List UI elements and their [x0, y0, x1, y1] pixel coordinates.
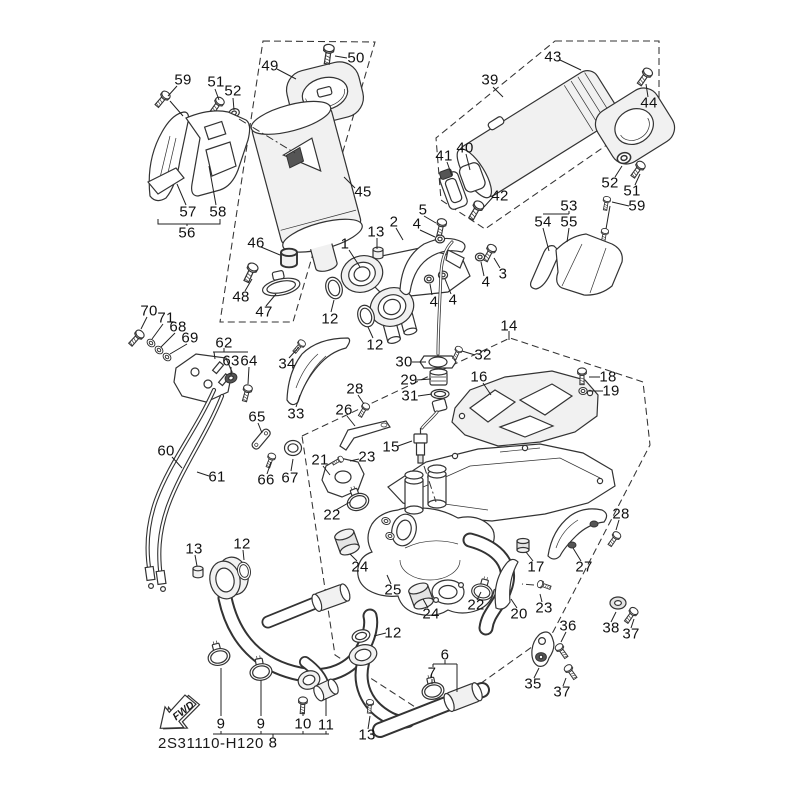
part-label-28: 28 [612, 507, 629, 522]
part-label-65: 65 [248, 410, 265, 425]
part-label-46: 46 [247, 236, 264, 251]
part-label-21: 21 [311, 453, 328, 468]
part-label-14: 14 [500, 319, 517, 334]
part-label-39: 39 [481, 73, 498, 88]
part-label-35: 35 [524, 677, 541, 692]
part-label-6: 6 [441, 648, 450, 663]
part-label-53: 53 [560, 199, 577, 214]
part-label-56: 56 [178, 226, 195, 241]
part-label-40: 40 [456, 141, 473, 156]
part-label-37: 37 [553, 685, 570, 700]
part-label-52: 52 [224, 84, 241, 99]
part-label-9: 9 [257, 717, 266, 732]
part-label-58: 58 [209, 205, 226, 220]
part-label-62: 62 [215, 336, 232, 351]
part-label-47: 47 [255, 305, 272, 320]
part-label-13: 13 [185, 542, 202, 557]
part-label-12: 12 [384, 626, 401, 641]
part-label-12: 12 [233, 537, 250, 552]
part-label-30: 30 [395, 355, 412, 370]
part-label-23: 23 [358, 450, 375, 465]
part-label-4: 4 [449, 293, 458, 308]
part-label-54: 54 [534, 215, 551, 230]
part-labels-layer: 5951524950455758564648474339444041425251… [0, 0, 800, 800]
part-label-12: 12 [321, 312, 338, 327]
part-label-61: 61 [208, 470, 225, 485]
part-label-49: 49 [261, 59, 278, 74]
part-label-4: 4 [413, 217, 422, 232]
part-label-16: 16 [470, 370, 487, 385]
part-label-10: 10 [294, 717, 311, 732]
part-label-45: 45 [354, 185, 371, 200]
part-label-24: 24 [422, 607, 439, 622]
part-label-7: 7 [428, 666, 437, 681]
part-label-60: 60 [157, 444, 174, 459]
part-label-48: 48 [232, 290, 249, 305]
part-label-22: 22 [467, 598, 484, 613]
part-label-15: 15 [382, 440, 399, 455]
part-label-64: 64 [240, 354, 257, 369]
part-label-42: 42 [491, 189, 508, 204]
part-label-34: 34 [278, 357, 295, 372]
part-label-44: 44 [640, 96, 657, 111]
part-label-17: 17 [527, 560, 544, 575]
part-label-51: 51 [623, 184, 640, 199]
part-label-19: 19 [602, 384, 619, 399]
part-label-23: 23 [535, 601, 552, 616]
part-label-59: 59 [174, 73, 191, 88]
part-label-52: 52 [601, 176, 618, 191]
part-label-66: 66 [257, 473, 274, 488]
part-label-4: 4 [482, 275, 491, 290]
part-label-3: 3 [499, 267, 508, 282]
part-label-33: 33 [287, 407, 304, 422]
part-label-31: 31 [401, 389, 418, 404]
part-label-41: 41 [435, 149, 452, 164]
part-label-37: 37 [622, 627, 639, 642]
part-label-8: 8 [269, 736, 278, 751]
part-label-67: 67 [281, 471, 298, 486]
part-label-28: 28 [346, 382, 363, 397]
part-label-70: 70 [140, 304, 157, 319]
part-label-63: 63 [222, 354, 239, 369]
part-label-55: 55 [560, 215, 577, 230]
part-label-24: 24 [351, 560, 368, 575]
part-label-69: 69 [181, 331, 198, 346]
part-label-13: 13 [358, 728, 375, 743]
part-label-43: 43 [544, 50, 561, 65]
part-label-20: 20 [510, 607, 527, 622]
part-label-11: 11 [318, 718, 334, 733]
part-label-50: 50 [347, 51, 364, 66]
part-label-13: 13 [367, 225, 384, 240]
part-label-27: 27 [575, 560, 592, 575]
part-label-9: 9 [217, 717, 226, 732]
part-label-51: 51 [207, 75, 224, 90]
part-label-57: 57 [179, 205, 196, 220]
part-label-36: 36 [559, 619, 576, 634]
parts-diagram: FWD 2S31110-H120 59515249504557585646484… [0, 0, 800, 800]
part-label-22: 22 [323, 508, 340, 523]
part-label-38: 38 [602, 621, 619, 636]
part-label-26: 26 [335, 403, 352, 418]
part-label-29: 29 [400, 373, 417, 388]
part-label-25: 25 [384, 583, 401, 598]
part-label-32: 32 [474, 348, 491, 363]
part-label-59: 59 [628, 199, 645, 214]
part-label-4: 4 [430, 295, 439, 310]
part-label-2: 2 [390, 215, 399, 230]
part-label-1: 1 [341, 237, 350, 252]
part-label-12: 12 [366, 338, 383, 353]
